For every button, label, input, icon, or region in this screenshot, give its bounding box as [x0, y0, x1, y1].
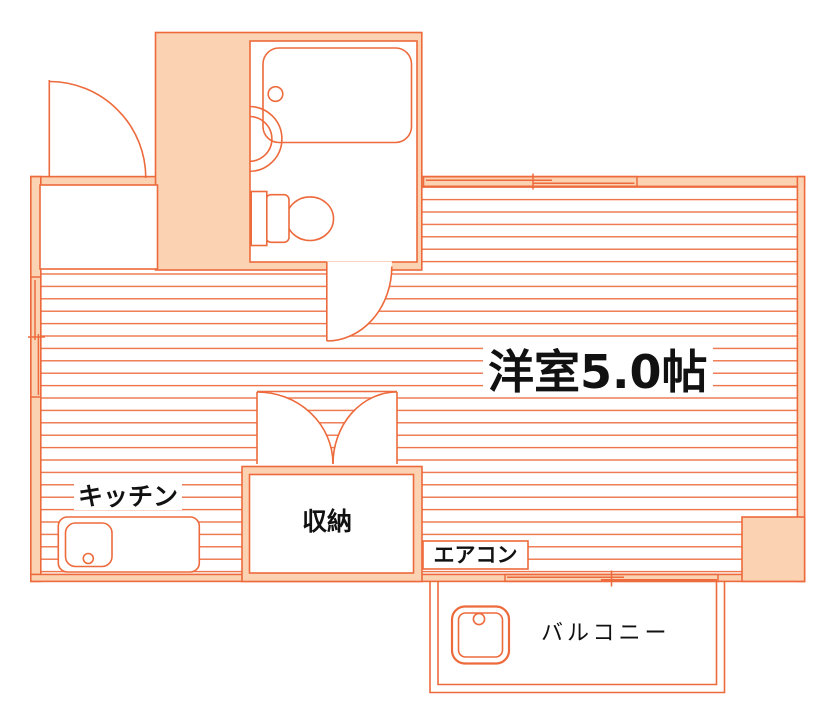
kitchen-counter	[58, 517, 199, 572]
aircon-label: エアコン	[423, 541, 528, 569]
washing-pan-drain	[473, 613, 484, 624]
entrance-floor	[40, 185, 158, 269]
toilet-tank	[266, 195, 289, 243]
entrance-door	[49, 80, 146, 178]
toilet-wall-mount	[251, 192, 267, 246]
bathtub	[263, 48, 412, 143]
floorplan-canvas	[0, 0, 840, 727]
entrance	[40, 185, 158, 269]
floorplan: 洋室5.0帖 キッチン 収納 エアコン バルコニー	[0, 0, 840, 727]
main-room-label: 洋室5.0帖	[483, 347, 713, 397]
kitchen-label: キッチン	[74, 484, 182, 510]
balcony-label: バルコニー	[541, 622, 671, 645]
toilet-bowl	[287, 197, 334, 241]
storage-label: 収納	[299, 509, 355, 535]
washing-machine-pan	[452, 607, 509, 664]
bathtub-drain	[268, 87, 283, 102]
bathtub-body	[263, 48, 412, 143]
entrance-door-arc	[49, 82, 146, 179]
kitchen-sink-drain	[83, 554, 93, 564]
pillar-body	[742, 517, 805, 581]
corner-pillar	[742, 517, 805, 581]
